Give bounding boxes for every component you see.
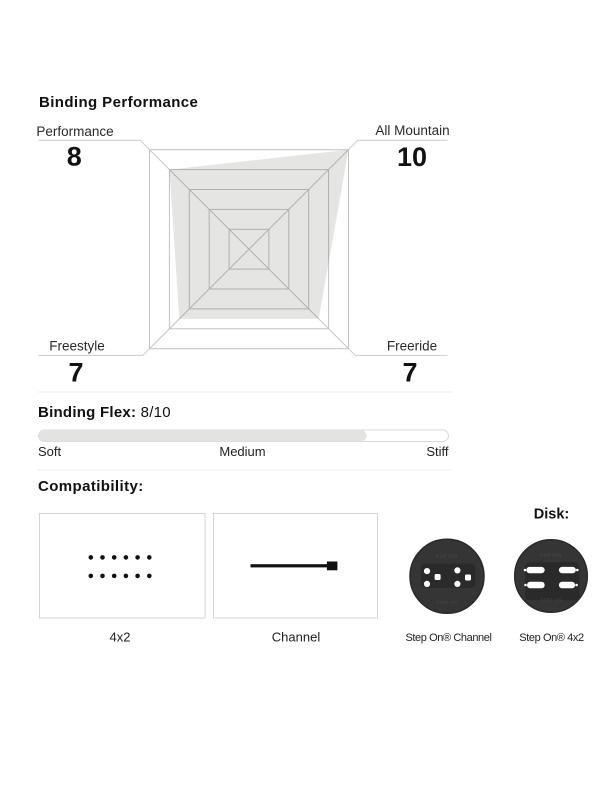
svg-text:STEP ON: STEP ON <box>540 598 562 603</box>
svg-text:Binding Performance: Binding Performance <box>39 94 198 111</box>
svg-text:7: 7 <box>68 358 83 388</box>
svg-text:Freestyle: Freestyle <box>49 339 105 354</box>
svg-text:Freeride: Freeride <box>387 339 437 354</box>
svg-text:Medium: Medium <box>219 444 265 459</box>
svg-text:Disk:: Disk: <box>534 507 569 523</box>
svg-text:8: 8 <box>67 142 82 172</box>
svg-text:Step On® 4x2: Step On® 4x2 <box>519 632 584 644</box>
svg-text:4x2: 4x2 <box>110 630 131 645</box>
svg-text:Binding Flex: 8/10: Binding Flex: 8/10 <box>38 404 171 421</box>
svg-text:Performance: Performance <box>36 124 113 139</box>
svg-text:Soft: Soft <box>38 444 62 459</box>
svg-text:Stiff: Stiff <box>426 444 449 459</box>
svg-text:Channel: Channel <box>272 630 321 645</box>
svg-text:STEP ON: STEP ON <box>436 600 458 605</box>
svg-text:Compatibility:: Compatibility: <box>38 478 144 495</box>
svg-text:Step On® Channel: Step On® Channel <box>405 632 491 644</box>
svg-text:10: 10 <box>397 142 427 172</box>
svg-text:BURTON: BURTON <box>436 554 458 559</box>
svg-text:BURTON: BURTON <box>540 553 562 558</box>
svg-text:All Mountain: All Mountain <box>375 123 449 138</box>
svg-text:7: 7 <box>402 358 417 388</box>
